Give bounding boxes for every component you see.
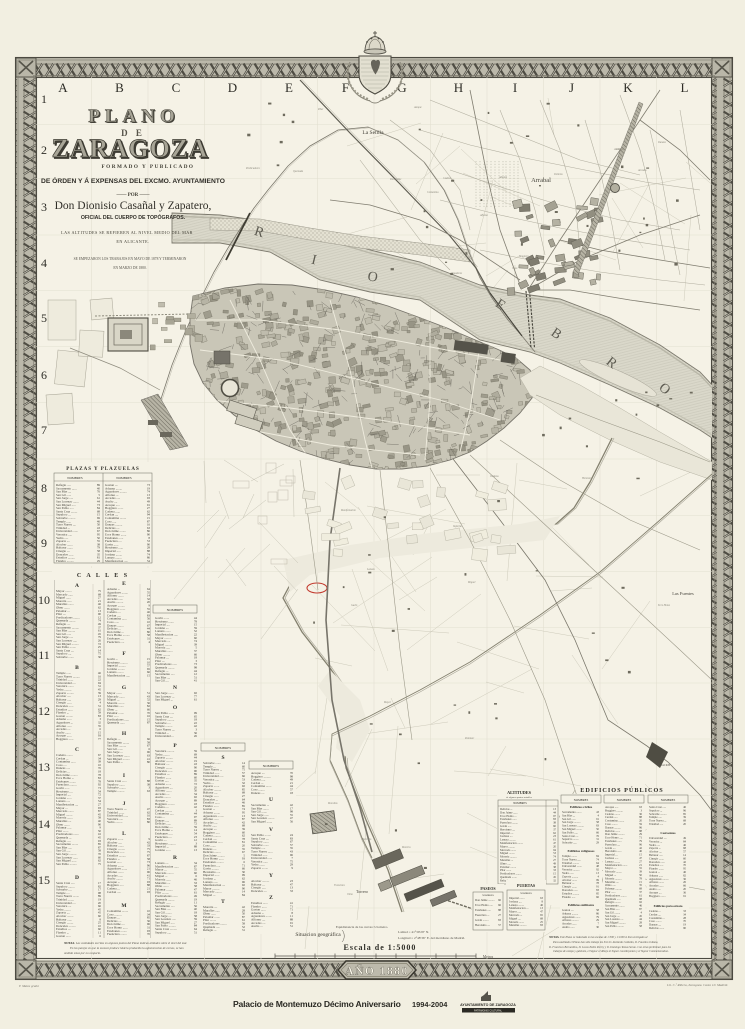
svg-text:Edificios militares: Edificios militares [568,903,595,907]
svg-text:Boggiero: Boggiero [519,255,529,258]
svg-text:AYUNTAMIENTO DE ZARAGOZA: AYUNTAMIENTO DE ZARAGOZA [460,1003,516,1007]
svg-text:B: B [115,80,124,95]
svg-text:U: U [269,797,273,803]
svg-text:NOMBRES: NOMBRES [617,798,632,802]
svg-text:—— POR ——: —— POR —— [115,193,150,198]
svg-text:80: 80 [147,760,151,764]
svg-text:41: 41 [194,679,198,683]
svg-text:San Miguel ...: San Miguel ... [155,698,173,702]
svg-text:NOMBRES: NOMBRES [520,892,532,895]
svg-text:L: L [681,80,689,95]
svg-text:Trinidad .....: Trinidad ..... [649,822,663,826]
svg-text:ESTACION: ESTACION [658,764,671,767]
svg-text:Donceles ....: Donceles .... [251,889,267,893]
svg-text:Cerdan .....: Cerdan ..... [107,890,121,894]
svg-text:Murallas .........: Murallas ......... [509,923,527,927]
svg-text:Boggiero ......: Boggiero ...... [56,737,74,741]
svg-text:Don Jaime: Don Jaime [389,178,402,181]
svg-text:A: A [75,583,79,589]
svg-text:ALTITUDES: ALTITUDES [507,790,531,795]
svg-text:San Miguel .......: San Miguel ....... [251,820,272,824]
svg-text:NOMBRES: NOMBRES [574,798,589,802]
svg-text:Edificios para ornato: Edificios para ornato [654,904,683,908]
svg-text:Cerdan: Cerdan [616,148,624,151]
svg-text:63: 63 [147,789,151,793]
svg-text:Quemada: Quemada [293,170,304,173]
svg-text:San Gil ....: San Gil .... [155,679,169,683]
svg-text:ZARAGOZA: ZARAGOZA [52,134,209,163]
svg-text:Mercado: Mercado [361,838,372,841]
svg-text:80: 80 [147,820,151,824]
svg-text:NOMBRES: NOMBRES [67,476,83,480]
svg-text:87: 87 [147,721,151,725]
svg-text:Ecce Homo: Ecce Homo [657,604,671,607]
svg-text:12: 12 [38,704,50,718]
svg-text:Heroismo: Heroismo [581,477,593,480]
svg-text:Edificios religiosos: Edificios religiosos [568,849,596,853]
svg-text:EDIFICIOS PÚBLICOS: EDIFICIOS PÚBLICOS [580,786,664,794]
svg-text:PUERTAS: PUERTAS [517,883,536,888]
svg-text:Fuenclara ........: Fuenclara ........ [107,932,127,936]
svg-text:E: E [285,80,293,95]
svg-text:NOTAS.: NOTAS. [63,941,75,945]
svg-text:Murallas: Murallas [327,802,338,805]
svg-text:NOMBRES: NOMBRES [116,476,132,480]
svg-text:8: 8 [41,481,47,495]
svg-text:PATRIMONIO CULTURAL: PATRIMONIO CULTURAL [474,1009,503,1012]
svg-text:4: 4 [41,256,47,270]
svg-text:Predicadores: Predicadores [245,167,260,170]
svg-text:Don Dionisio Casañal y Zapater: Don Dionisio Casañal y Zapatero, [55,200,212,212]
svg-text:Miguel: Miguel [467,581,476,584]
svg-text:Imperial: Imperial [452,525,462,528]
svg-text:T: T [221,899,225,905]
svg-text:La Setilla: La Setilla [362,130,384,136]
svg-text:9: 9 [41,536,47,550]
svg-text:Don Jaime .........: Don Jaime ......... [475,898,495,902]
svg-text:A: A [58,80,68,95]
svg-text:H: H [454,80,463,95]
svg-text:Y: Y [269,873,273,879]
svg-text:3: 3 [41,200,47,214]
svg-text:San Pablo .........: San Pablo ......... [56,862,77,866]
svg-text:D. Francisco Bernardino, D. Lu: D. Francisco Bernardino, D. Lucas Pedro … [548,946,671,949]
svg-text:18: 18 [290,791,294,795]
svg-text:D: D [228,80,237,95]
svg-text:Contamina: Contamina [427,191,439,194]
svg-text:Azoque: Azoque [413,106,422,109]
svg-text:15: 15 [38,873,50,887]
svg-text:Conventos: Conventos [660,831,676,835]
svg-text:G: G [122,685,127,691]
svg-text:29: 29 [97,559,101,563]
svg-text:Longitud = 2°48′36″ E. del mer: Longitud = 2°48′36″ E. del meridiano de … [398,936,465,940]
svg-text:B: B [75,665,79,671]
svg-text:Flandro .........: Flandro ......... [56,559,74,563]
svg-text:E: E [122,581,126,587]
svg-text:Para auxiliado el Plano han si: Para auxiliado el Plano han sido trabajo… [552,941,658,944]
svg-text:San Pablo ...: San Pablo ... [107,760,123,764]
svg-text:Palomar: Palomar [464,737,475,740]
svg-text:Aduana: Aduana [498,176,508,179]
svg-text:Manifestacion: Manifestacion [340,509,357,512]
svg-text:San Pablo .........: San Pablo ......... [605,924,624,928]
svg-text:Fuenclara .....: Fuenclara ..... [107,640,125,644]
svg-text:Las cantidades escritas en alg: Las cantidades escritas en algunos punto… [75,941,188,945]
svg-text:Gavin: Gavin [351,604,358,607]
svg-text:Jordana: Jordana [490,475,499,478]
svg-text:I: I [513,80,517,95]
svg-text:Metros: Metros [483,955,494,959]
svg-text:26: 26 [194,734,198,738]
svg-text:DE ÓRDEN Y Á EXPENSAS DEL EXCM: DE ÓRDEN Y Á EXPENSAS DEL EXCMO. AYUNTAM… [41,176,225,185]
svg-text:NOMBRES: NOMBRES [661,798,676,802]
svg-text:Temple .........: Temple ......... [107,789,125,793]
svg-text:PLANO: PLANO [88,106,180,127]
svg-text:5: 5 [41,311,47,325]
svg-text:EN ALICANTE.: EN ALICANTE. [116,239,149,244]
svg-text:NOTAS.: NOTAS. [548,935,560,939]
svg-text:D: D [75,875,79,881]
svg-text:84: 84 [242,893,246,897]
svg-text:14: 14 [38,817,50,831]
svg-text:J: J [569,80,574,95]
svg-text:1: 1 [41,92,47,106]
svg-text:Miguel ...: Miguel ... [203,893,216,897]
svg-text:Arrabal: Arrabal [531,177,551,184]
svg-text:Boggiero .......: Boggiero ....... [649,894,666,898]
svg-text:Manifestacion .....: Manifestacion ..... [107,674,130,678]
svg-text:Sobrarbe .....: Sobrarbe ..... [562,841,577,845]
svg-text:F: F [342,80,349,95]
svg-text:NOMBRES: NOMBRES [167,608,184,612]
svg-text:Moreria: Moreria [401,846,411,849]
svg-text:Palacio de Montemuzo Décimo An: Palacio de Montemuzo Décimo Aniversario [233,999,401,1009]
svg-text:NOMBRES: NOMBRES [215,746,232,750]
svg-text:Refugio ...: Refugio ... [203,928,217,932]
svg-text:F. Mateu grabó: F. Mateu grabó [18,984,39,988]
svg-text:Asalto ...: Asalto ... [251,924,263,928]
svg-text:6: 6 [41,368,47,382]
svg-text:Torrero: Torrero [356,889,368,894]
svg-text:H: H [122,731,127,737]
svg-text:Delicias .......: Delicias ....... [649,926,665,930]
svg-text:51: 51 [194,930,198,934]
svg-text:Gavin ........: Gavin ........ [475,918,489,922]
svg-text:30: 30 [98,655,102,659]
svg-text:Pilar: Pilar [317,108,324,111]
svg-text:Mayor: Mayor [383,701,392,704]
svg-text:Gaston ......: Gaston ...... [56,934,71,938]
svg-text:Fuenclara ...: Fuenclara ... [475,913,490,917]
svg-text:Arcadas: Arcadas [637,169,647,172]
svg-text:77: 77 [98,737,102,741]
svg-text:omitido estas por no ocuparlo.: omitido estas por no ocuparlo. [64,951,101,955]
svg-text:Fuenclara: Fuenclara [333,884,346,887]
svg-text:EN MARZO DE 1880.: EN MARZO DE 1880. [113,266,146,270]
svg-text:Las Fuentes: Las Fuentes [672,591,694,596]
svg-text:Flandro .....: Flandro ..... [562,895,576,899]
svg-text:de algunos puntos notables: de algunos puntos notables [506,796,532,799]
svg-text:11: 11 [38,648,50,662]
svg-text:trabajos de campo y gabinete,: trabajos de campo y gabinete, el Signor … [553,950,669,953]
svg-text:Olmo: Olmo [347,893,353,896]
svg-text:10: 10 [38,593,50,607]
svg-text:15: 15 [147,674,151,678]
svg-text:61: 61 [194,698,198,702]
svg-text:Este Plano se redactado en las: Este Plano se redactado en las escalas d… [559,936,648,939]
svg-text:K: K [623,80,633,95]
svg-text:NOMBRES: NOMBRES [263,764,280,768]
svg-text:Zaporta ........: Zaporta ........ [251,866,268,870]
svg-text:Quemada ......: Quemada ...... [107,721,125,725]
svg-text:Manifestacion .....: Manifestacion ..... [105,559,128,563]
svg-text:PASEOS: PASEOS [480,886,496,891]
svg-text:13: 13 [194,848,198,852]
svg-text:Jordana ......: Jordana ...... [155,848,171,852]
svg-text:Z: Z [269,895,273,901]
svg-text:C: C [75,747,79,753]
svg-text:70: 70 [147,932,151,936]
svg-text:54: 54 [147,559,151,563]
svg-text:Coso: Coso [512,267,518,270]
svg-text:33: 33 [290,889,294,893]
svg-text:Latitud = 41°39′29″ N.: Latitud = 41°39′29″ N. [398,930,429,934]
svg-text:Sepulcro .....: Sepulcro ..... [155,930,171,934]
svg-text:FORMADO Y PUBLICADO: FORMADO Y PUBLICADO [102,164,195,170]
svg-text:Delicias: Delicias [553,173,563,176]
svg-text:OFICIAL DEL CUERPO DE TOPÓGRAF: OFICIAL DEL CUERPO DE TOPÓGRAFOS. [81,213,186,221]
svg-text:Lanuza: Lanuza [366,568,375,571]
svg-text:56: 56 [290,820,294,824]
svg-text:93: 93 [147,890,151,894]
svg-text:75: 75 [98,862,102,866]
svg-text:2: 2 [41,143,47,157]
svg-text:Aguadores: Aguadores [450,272,462,275]
svg-text:LAS ALTITUDES SE REFIEREN: LAS ALTITUDES SE REFIEREN AL NIVEL MEDIO… [61,230,193,235]
svg-text:13: 13 [38,760,50,774]
svg-text:Asalto ......: Asalto ...... [562,925,575,929]
svg-text:S: S [221,755,224,761]
svg-text:31: 31 [242,928,246,932]
svg-text:AÑO 1880: AÑO 1880 [345,964,408,978]
svg-text:Situacion geográfica: Situacion geográfica [295,931,341,938]
svg-text:Ecce Homo .....: Ecce Homo ..... [475,903,493,907]
svg-text:PLAZAS Y PLAZUELAS: PLAZAS Y PLAZUELAS [66,467,139,472]
svg-text:Equidistancia de las curvas: U: Equidistancia de las curvas: Un metro. [336,925,389,929]
svg-text:SE EMPEZARON LOS TRABAJOS EN M: SE EMPEZARON LOS TRABAJOS EN MAYO DE 187… [74,257,187,261]
svg-text:Estebanes .....: Estebanes ..... [475,908,491,912]
svg-text:Cadena: Cadena [443,177,452,180]
svg-text:C A L L E S: C A L L E S [77,573,129,579]
svg-text:Escala de 1:5000: Escala de 1:5000 [344,943,417,952]
svg-text:NOMBRES: NOMBRES [513,802,527,805]
svg-text:7: 7 [41,423,47,437]
svg-text:Yedra .........: Yedra ......... [107,820,123,824]
svg-text:Alfonso: Alfonso [479,214,489,217]
svg-text:Danzas ....: Danzas .... [251,791,265,795]
svg-text:1994-2004: 1994-2004 [412,1000,448,1009]
svg-text:51: 51 [290,924,294,928]
svg-text:NOMBRES: NOMBRES [482,894,494,897]
svg-text:Heroismo ....: Heroismo .... [475,923,490,927]
svg-text:Sobrarbe .......: Sobrarbe ....... [56,655,74,659]
svg-text:Danzas: Danzas [657,141,666,144]
svg-text:Edificios civiles: Edificios civiles [570,805,593,809]
svg-text:C: C [172,80,181,95]
svg-text:Universidad ...: Universidad ... [155,734,174,738]
